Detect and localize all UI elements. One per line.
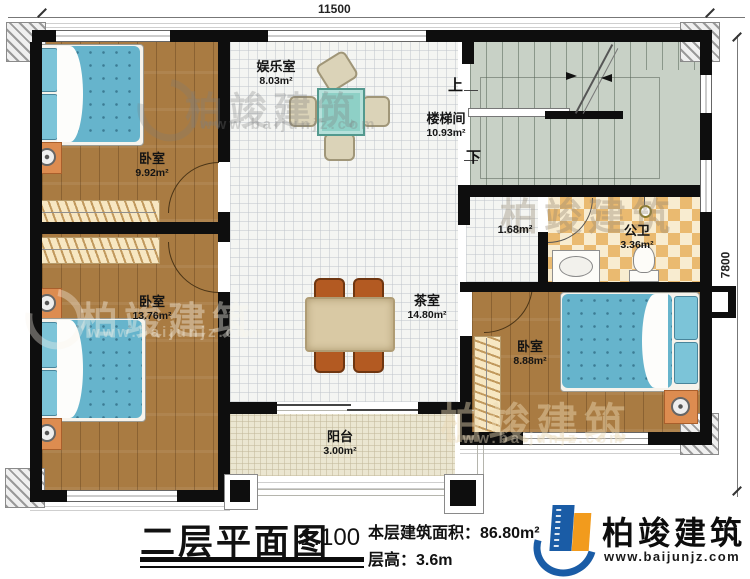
balcony-pier-core <box>230 480 250 502</box>
window-bottom-bedroom2 <box>67 490 177 502</box>
guide-line <box>40 27 712 28</box>
room-area: 3.36m² <box>587 239 687 251</box>
room-label-bedroom2: 卧室 13.76m² <box>102 295 202 322</box>
room-label-hall: 1.68m² <box>465 224 565 237</box>
title-underline-thin <box>140 566 364 568</box>
logo-building-orange <box>572 513 592 551</box>
room-name: 娱乐室 <box>226 60 326 75</box>
chair <box>289 96 317 127</box>
window-right-lower <box>700 160 712 212</box>
guide-line <box>460 449 712 450</box>
stairs-down-label: 下 <box>466 146 481 167</box>
wall-bedroom1-bedroom2 <box>42 222 218 234</box>
stairs-up-label: 上 <box>448 74 463 95</box>
hall-168-floor <box>466 197 538 282</box>
stair-direction-arrow <box>566 72 577 80</box>
stair-direction-arrow <box>601 74 612 82</box>
logo-building-blue <box>549 505 574 551</box>
wall-bedrooms-hall <box>218 292 230 502</box>
dimension-line-top <box>8 17 745 18</box>
drawing-scale: 1:100 <box>300 524 360 552</box>
wall-niche-inner <box>712 292 728 312</box>
wall-balcony-left <box>218 402 277 414</box>
window-top-bedroom1 <box>56 30 170 42</box>
logo-name: 柏竣建筑 <box>602 508 746 554</box>
stair-flight-line <box>464 90 478 91</box>
wall-bedroom3-top <box>460 282 712 292</box>
mahjong-table <box>317 88 365 136</box>
window-right-upper <box>700 75 712 113</box>
wall-left <box>30 42 42 502</box>
floor-area-text: 本层建筑面积：86.80m² <box>368 519 540 543</box>
logo-url: www.baijunjz.com <box>604 549 740 564</box>
sliding-door <box>347 409 418 411</box>
sink-basin <box>559 256 593 277</box>
room-area: 1.68m² <box>465 224 565 237</box>
balcony-pier-core <box>450 480 476 506</box>
room-label-entertainment: 娱乐室 8.03m² <box>226 60 326 87</box>
title-underline-thick <box>140 557 364 562</box>
room-name: 卧室 <box>102 152 202 167</box>
room-name: 茶室 <box>377 294 477 309</box>
room-area: 8.03m² <box>226 75 326 87</box>
floor-height-text: 层高：3.6m <box>368 546 452 570</box>
guide-line <box>30 506 230 507</box>
wardrobe-rail <box>34 249 156 250</box>
room-label-bathroom: 公卫 3.36m² <box>587 224 687 251</box>
room-name: 公卫 <box>587 224 687 239</box>
wall-bedrooms-hall <box>218 212 230 242</box>
guide-line <box>40 23 712 24</box>
duvet-fold <box>642 294 668 388</box>
room-label-bedroom3: 卧室 8.88m² <box>480 340 580 367</box>
wall-bathroom-left <box>538 232 548 282</box>
wall-hall-stub <box>458 185 470 225</box>
room-name: 阳台 <box>290 430 390 445</box>
duvet-fold <box>57 46 83 142</box>
stair-inner-border <box>480 77 660 179</box>
lamp-icon <box>671 397 690 416</box>
wall-below-stairs <box>458 185 712 197</box>
room-label-balcony: 阳台 3.00m² <box>290 430 390 457</box>
floor-plan-canvas: 11500 7800 <box>0 0 750 579</box>
room-area: 13.76m² <box>102 310 202 322</box>
room-area: 8.88m² <box>480 355 580 367</box>
pillow <box>674 342 698 384</box>
wall-balcony-right <box>418 402 470 414</box>
chair <box>362 96 390 127</box>
room-name: 卧室 <box>480 340 580 355</box>
room-label-bedroom1: 卧室 9.92m² <box>102 152 202 179</box>
room-area: 10.93m² <box>396 127 496 139</box>
wall-tearoom-right <box>460 336 472 432</box>
dimension-line-right <box>737 35 738 497</box>
room-label-stairwell: 楼梯间 10.93m² <box>396 112 496 139</box>
dimension-right-label: 7800 <box>718 252 732 279</box>
wardrobe-rail <box>34 212 156 213</box>
ceiling-light-icon <box>639 205 652 218</box>
room-area: 3.00m² <box>290 445 390 457</box>
room-name: 楼梯间 <box>396 112 496 127</box>
wall-stair-stub <box>462 42 474 64</box>
room-area: 9.92m² <box>102 167 202 179</box>
window-top-entertainment <box>268 30 426 42</box>
pillow <box>674 296 698 340</box>
guide-line <box>460 453 712 454</box>
guide-line <box>30 510 230 511</box>
sliding-door <box>277 404 351 406</box>
dimension-top-label: 11500 <box>318 2 351 16</box>
room-name: 卧室 <box>102 295 202 310</box>
room-area: 14.80m² <box>377 309 477 321</box>
wardrobe <box>32 237 160 264</box>
window-bottom-bedroom3 <box>523 432 648 445</box>
chair <box>324 133 355 161</box>
room-label-tearoom: 茶室 14.80m² <box>377 294 477 321</box>
